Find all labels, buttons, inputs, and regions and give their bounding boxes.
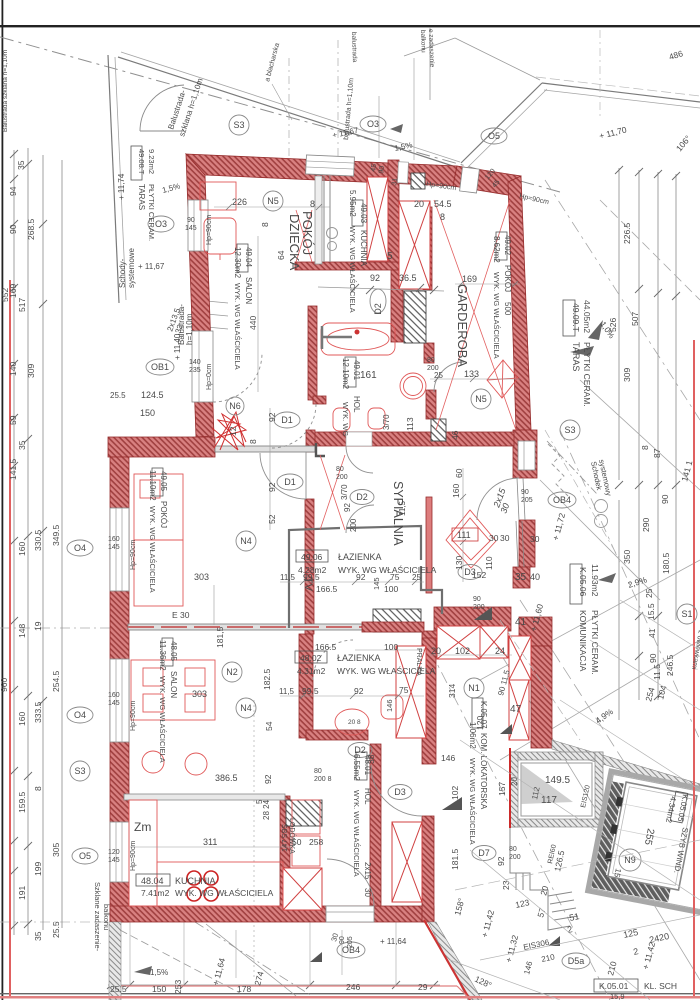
svg-text:balkonu: balkonu <box>419 30 427 53</box>
svg-text:8: 8 <box>310 199 315 209</box>
svg-text:200: 200 <box>473 604 485 611</box>
svg-text:41: 41 <box>515 617 527 628</box>
svg-text:POKÓJ: POKÓJ <box>159 501 168 528</box>
svg-text:92: 92 <box>354 686 364 696</box>
svg-text:92: 92 <box>343 503 352 512</box>
svg-text:7.41m2: 7.41m2 <box>141 888 170 898</box>
svg-text:99.5: 99.5 <box>302 686 319 696</box>
svg-text:8: 8 <box>260 222 270 227</box>
svg-text:386.5: 386.5 <box>215 773 238 783</box>
svg-text:WYK. WG WŁAŚCICIELA: WYK. WG WŁAŚCICIELA <box>348 226 357 313</box>
svg-text:K.05.07: K.05.07 <box>479 701 488 729</box>
svg-text:160: 160 <box>17 712 27 726</box>
svg-text:S3: S3 <box>74 766 85 776</box>
svg-text:226: 226 <box>232 197 247 207</box>
svg-text:152: 152 <box>472 570 486 580</box>
svg-text:309: 309 <box>26 364 36 378</box>
svg-text:WYK. WG WŁAŚCICIELA: WYK. WG WŁAŚCICIELA <box>175 887 274 898</box>
svg-text:181,5: 181,5 <box>215 626 225 648</box>
svg-text:3/70: 3/70 <box>382 414 391 430</box>
svg-text:49.02: 49.02 <box>503 235 512 256</box>
svg-text:O5: O5 <box>488 131 500 141</box>
svg-text:253: 253 <box>173 980 183 994</box>
svg-text:3/70: 3/70 <box>340 484 349 500</box>
svg-text:D7: D7 <box>478 848 490 858</box>
svg-text:POKÓJ: POKÓJ <box>503 265 512 292</box>
svg-text:Zm: Zm <box>134 820 151 834</box>
svg-text:29: 29 <box>418 982 428 992</box>
svg-text:WYK. WG WŁAŚCICIELA: WYK. WG WŁAŚCICIELA <box>148 506 157 593</box>
svg-text:133: 133 <box>464 369 479 379</box>
svg-text:D3: D3 <box>394 787 406 797</box>
svg-text:WYK. WG WŁAŚCICIELA: WYK. WG WŁAŚCICIELA <box>352 790 361 877</box>
svg-text:TARAS: TARAS <box>137 184 146 210</box>
svg-text:48.02: 48.02 <box>300 653 322 663</box>
svg-text:140: 140 <box>189 359 201 366</box>
svg-text:15,9: 15,9 <box>610 992 625 1000</box>
svg-text:181.5: 181.5 <box>450 848 460 870</box>
svg-text:8: 8 <box>248 439 258 444</box>
svg-text:WYK. WG WŁAŚCICIELA: WYK. WG WŁAŚCICIELA <box>233 283 242 370</box>
svg-text:K.05.06: K.05.06 <box>578 567 588 597</box>
svg-text:ŁAZIENKA: ŁAZIENKA <box>338 552 382 562</box>
svg-text:36.5: 36.5 <box>399 273 417 283</box>
svg-text:HOL: HOL <box>363 788 372 805</box>
svg-text:balkonu: balkonu <box>102 904 111 930</box>
svg-text:h=1,10m: h=1,10m <box>185 313 194 345</box>
svg-text:HOL: HOL <box>352 396 361 413</box>
svg-text:200: 200 <box>349 518 358 532</box>
svg-text:148: 148 <box>17 624 27 638</box>
svg-text:Balustrada szklana h=1,10m: Balustrada szklana h=1,10m <box>2 50 9 132</box>
svg-text:49.08.T: 49.08.T <box>137 149 146 175</box>
svg-text:31: 31 <box>391 177 399 186</box>
svg-text:4.31m2: 4.31m2 <box>297 666 326 676</box>
svg-text:52: 52 <box>267 514 277 524</box>
svg-text:DZIECKA: DZIECKA <box>287 214 302 271</box>
svg-text:WYK. WG WŁAŚCICIELA: WYK. WG WŁAŚCICIELA <box>468 758 477 845</box>
svg-text:330.5: 330.5 <box>33 529 43 551</box>
svg-text:130: 130 <box>454 556 464 570</box>
svg-text:25: 25 <box>644 588 654 598</box>
svg-text:99.5: 99.5 <box>303 572 320 582</box>
svg-text:150: 150 <box>140 408 155 418</box>
svg-text:25: 25 <box>412 573 421 582</box>
svg-text:205: 205 <box>521 497 533 504</box>
svg-text:180.5: 180.5 <box>661 552 671 574</box>
svg-text:28 24: 28 24 <box>262 799 271 820</box>
svg-text:balustrada: balustrada <box>350 32 358 63</box>
svg-text:+ 11,67: + 11,67 <box>138 262 165 271</box>
svg-text:314: 314 <box>447 684 457 698</box>
svg-text:S3: S3 <box>233 120 244 130</box>
svg-text:48.01: 48.01 <box>363 755 372 776</box>
svg-text:12.10m2: 12.10m2 <box>341 358 350 390</box>
svg-text:110: 110 <box>484 556 494 570</box>
svg-text:O3: O3 <box>367 119 379 129</box>
svg-text:246: 246 <box>346 982 360 992</box>
svg-text:49.06: 49.06 <box>301 552 323 562</box>
svg-text:e zadaszenie: e zadaszenie <box>427 29 435 68</box>
svg-text:11,5: 11,5 <box>398 500 407 516</box>
svg-text:500: 500 <box>503 302 512 316</box>
svg-text:systemowe: systemowe <box>127 247 136 288</box>
svg-text:145: 145 <box>108 857 120 864</box>
svg-text:48.04: 48.04 <box>141 876 164 886</box>
svg-text:Hp=90cm: Hp=90cm <box>130 540 137 570</box>
svg-text:OB1: OB1 <box>151 362 169 372</box>
svg-text:ŁAZIENKA: ŁAZIENKA <box>337 653 381 663</box>
svg-text:N9: N9 <box>624 855 636 865</box>
svg-text:80: 80 <box>314 768 322 775</box>
svg-text:145: 145 <box>108 700 120 707</box>
svg-text:120: 120 <box>108 849 120 856</box>
svg-text:145: 145 <box>372 577 381 590</box>
svg-text:12.30m2: 12.30m2 <box>233 247 242 279</box>
svg-text:140: 140 <box>8 362 18 376</box>
svg-text:50: 50 <box>292 837 302 847</box>
svg-text:25: 25 <box>434 371 443 380</box>
svg-text:24: 24 <box>495 646 505 656</box>
svg-text:Hp=0cm: Hp=0cm <box>206 364 213 390</box>
svg-text:S1: S1 <box>681 609 692 619</box>
svg-text:960: 960 <box>0 678 9 692</box>
svg-text:311: 311 <box>203 837 217 847</box>
svg-text:145: 145 <box>185 225 197 232</box>
svg-text:WYK. WG WŁAŚCICIELA: WYK. WG WŁAŚCICIELA <box>338 564 437 575</box>
svg-text:N6: N6 <box>229 401 241 411</box>
svg-text:333.5: 333.5 <box>33 701 43 723</box>
svg-text:92: 92 <box>267 412 277 422</box>
svg-text:20 8: 20 8 <box>348 719 361 726</box>
svg-text:48.05: 48.05 <box>169 641 178 662</box>
svg-text:191: 191 <box>17 886 27 900</box>
svg-text:92: 92 <box>263 774 273 784</box>
svg-text:8: 8 <box>440 212 445 222</box>
svg-text:124.5: 124.5 <box>141 390 164 400</box>
svg-text:64: 64 <box>276 250 286 260</box>
svg-text:166.5: 166.5 <box>316 584 338 594</box>
svg-text:35: 35 <box>16 160 26 170</box>
svg-text:N4: N4 <box>240 536 252 546</box>
svg-text:49.04: 49.04 <box>244 247 253 268</box>
svg-text:23: 23 <box>501 880 511 890</box>
svg-text:75: 75 <box>390 572 400 582</box>
svg-text:O4: O4 <box>74 710 86 720</box>
svg-text:SBS: SBS <box>280 824 287 838</box>
svg-text:PŁYTKI CERAM.: PŁYTKI CERAM. <box>590 610 600 675</box>
svg-text:440: 440 <box>248 316 258 330</box>
svg-text:6.55m2: 6.55m2 <box>352 754 361 781</box>
svg-text:Schody-: Schody- <box>118 258 127 288</box>
svg-text:11,5: 11,5 <box>280 573 296 582</box>
svg-text:Szklane zadaszenie-: Szklane zadaszenie- <box>93 882 102 952</box>
svg-text:D1: D1 <box>281 415 293 425</box>
svg-text:1,5%: 1,5% <box>150 968 168 977</box>
svg-text:WYK. WG WŁAŚCICIELA: WYK. WG WŁAŚCICIELA <box>492 272 501 359</box>
svg-text:30: 30 <box>500 533 510 543</box>
svg-text:S3: S3 <box>564 425 575 435</box>
svg-text:169: 169 <box>462 274 477 284</box>
svg-text:200: 200 <box>336 474 348 481</box>
svg-text:102: 102 <box>455 646 470 656</box>
svg-text:205: 205 <box>347 936 354 948</box>
svg-text:54: 54 <box>264 721 274 731</box>
svg-text:O5: O5 <box>79 851 91 861</box>
svg-text:2x15: 2x15 <box>363 862 372 880</box>
svg-text:90: 90 <box>521 489 529 496</box>
svg-text:54.5: 54.5 <box>434 199 452 209</box>
svg-text:226.5: 226.5 <box>622 222 632 244</box>
svg-text:N2: N2 <box>226 667 238 677</box>
svg-text:25.5: 25.5 <box>110 391 126 400</box>
svg-text:KUCHNIA: KUCHNIA <box>175 876 216 886</box>
svg-text:N1: N1 <box>468 683 480 693</box>
svg-text:111: 111 <box>457 530 471 540</box>
svg-text:102: 102 <box>450 786 460 800</box>
svg-text:11,5: 11,5 <box>279 687 295 696</box>
svg-text:161: 161 <box>360 370 377 381</box>
svg-text:90: 90 <box>339 936 346 944</box>
svg-text:47: 47 <box>510 704 522 715</box>
svg-text:N5: N5 <box>475 394 487 404</box>
svg-text:N4: N4 <box>240 703 252 713</box>
svg-text:100: 100 <box>384 584 398 594</box>
svg-text:100: 100 <box>384 642 398 652</box>
svg-text:146: 146 <box>441 753 455 763</box>
svg-text:305: 305 <box>51 843 61 857</box>
svg-text:N5: N5 <box>267 196 279 206</box>
svg-text:149.5: 149.5 <box>545 775 570 786</box>
svg-text:235: 235 <box>189 367 201 374</box>
svg-text:PŁYTKI CERAM.: PŁYTKI CERAM. <box>582 342 592 407</box>
svg-text:K.05.01: K.05.01 <box>599 981 629 991</box>
svg-text:20: 20 <box>510 777 519 786</box>
svg-text:49.03: 49.03 <box>359 203 368 224</box>
svg-text:92: 92 <box>496 856 506 866</box>
svg-text:8: 8 <box>640 445 650 450</box>
svg-text:KL. SCH: KL. SCH <box>644 981 677 991</box>
svg-text:5: 5 <box>387 251 393 262</box>
svg-text:268.5: 268.5 <box>26 218 36 240</box>
svg-text:309: 309 <box>622 368 632 382</box>
svg-text:178: 178 <box>237 984 251 994</box>
svg-text:D2: D2 <box>373 303 383 315</box>
svg-text:Hp=90cm: Hp=90cm <box>206 215 213 245</box>
svg-text:35: 35 <box>17 440 27 450</box>
svg-text:517: 517 <box>17 298 27 312</box>
svg-text:35: 35 <box>33 931 43 941</box>
svg-text:D1: D1 <box>284 477 296 487</box>
svg-text:O4: O4 <box>74 543 86 553</box>
svg-text:D2: D2 <box>356 492 368 502</box>
svg-text:35: 35 <box>515 572 527 583</box>
svg-text:200: 200 <box>509 854 521 861</box>
svg-text:90: 90 <box>187 217 195 224</box>
svg-text:1.06m2: 1.06m2 <box>468 722 477 749</box>
svg-text:WYK. WG WŁAŚCICIELA: WYK. WG WŁAŚCICIELA <box>337 665 436 676</box>
svg-text:90: 90 <box>648 653 658 663</box>
svg-text:41: 41 <box>647 628 657 638</box>
svg-text:KOMUNIKACJA: KOMUNIKACJA <box>578 610 588 672</box>
svg-text:30: 30 <box>530 534 540 544</box>
svg-text:SALON: SALON <box>244 277 253 304</box>
svg-text:25.5: 25.5 <box>51 921 61 938</box>
svg-text:200 8: 200 8 <box>314 776 332 783</box>
svg-text:8.62m2: 8.62m2 <box>492 236 501 263</box>
svg-text:11.5: 11.5 <box>652 664 662 680</box>
svg-text:40: 40 <box>530 572 540 582</box>
svg-text:WYK. WG WŁAŚCICIELA: WYK. WG WŁAŚCICIELA <box>158 676 167 763</box>
svg-text:80: 80 <box>509 846 517 853</box>
svg-text:30: 30 <box>363 888 372 897</box>
svg-text:160: 160 <box>451 484 461 498</box>
svg-text:TARAS: TARAS <box>571 342 581 371</box>
svg-text:11.36m2: 11.36m2 <box>158 640 167 671</box>
svg-text:150: 150 <box>152 984 166 994</box>
svg-text:290: 290 <box>641 518 651 532</box>
svg-text:303: 303 <box>192 689 207 699</box>
svg-text:SALON: SALON <box>169 671 178 698</box>
svg-text:51: 51 <box>568 911 580 923</box>
svg-text:45: 45 <box>370 163 378 172</box>
svg-text:11.10m2: 11.10m2 <box>148 470 157 501</box>
svg-text:147: 147 <box>280 839 289 852</box>
svg-text:5.95m2: 5.95m2 <box>348 190 357 217</box>
svg-text:87: 87 <box>652 448 662 458</box>
svg-text:90: 90 <box>378 165 386 174</box>
svg-text:9.23m2: 9.23m2 <box>147 149 156 174</box>
svg-text:166.5: 166.5 <box>315 642 337 652</box>
svg-text:PŁYTKI CERAM.: PŁYTKI CERAM. <box>147 184 156 241</box>
svg-text:350: 350 <box>622 550 632 564</box>
svg-text:20: 20 <box>414 199 424 209</box>
svg-text:90: 90 <box>660 494 670 504</box>
svg-text:44.05m2: 44.05m2 <box>582 300 592 333</box>
svg-text:GARDEROBA: GARDEROBA <box>455 284 470 367</box>
svg-text:8: 8 <box>33 786 43 791</box>
svg-text:117: 117 <box>541 795 557 806</box>
svg-text:303: 303 <box>194 572 209 582</box>
svg-text:19: 19 <box>33 621 43 631</box>
svg-text:157: 157 <box>497 782 507 796</box>
svg-text:KUCHNIA: KUCHNIA <box>359 230 368 267</box>
svg-text:+ 11,74: + 11,74 <box>117 173 126 200</box>
svg-text:254.5: 254.5 <box>51 670 61 692</box>
svg-text:92: 92 <box>370 273 380 283</box>
svg-text:Hp=90cm: Hp=90cm <box>130 701 137 731</box>
svg-text:160: 160 <box>108 692 120 699</box>
svg-text:552: 552 <box>0 288 10 302</box>
svg-text:160: 160 <box>17 542 27 556</box>
svg-text:146: 146 <box>385 699 394 712</box>
svg-text:80: 80 <box>336 466 344 473</box>
svg-text:145: 145 <box>108 544 120 551</box>
svg-text:+ 11,64: + 11,64 <box>380 937 407 946</box>
svg-text:OB4: OB4 <box>553 495 571 505</box>
svg-text:258: 258 <box>309 837 323 847</box>
svg-text:199: 199 <box>33 862 43 876</box>
svg-text:E 30: E 30 <box>172 610 190 620</box>
svg-text:D5a: D5a <box>568 956 585 966</box>
svg-text:141.5: 141.5 <box>8 458 18 480</box>
svg-text:49.09.T: 49.09.T <box>571 303 581 332</box>
svg-text:75: 75 <box>399 685 409 695</box>
svg-text:160: 160 <box>108 536 120 543</box>
svg-text:30: 30 <box>489 533 499 543</box>
svg-text:KOM. LOKATORSKA: KOM. LOKATORSKA <box>479 733 488 810</box>
svg-text:92: 92 <box>356 572 366 582</box>
svg-text:WYK. WG: WYK. WG <box>341 402 350 436</box>
svg-text:507: 507 <box>630 312 640 326</box>
svg-text:11.93m2: 11.93m2 <box>590 564 600 597</box>
svg-text:159.5: 159.5 <box>17 791 27 813</box>
svg-text:49.05: 49.05 <box>159 471 168 492</box>
svg-text:Hp=90cm: Hp=90cm <box>130 841 137 871</box>
svg-text:12: 12 <box>228 426 238 436</box>
svg-text:92: 92 <box>267 482 277 492</box>
svg-text:80: 80 <box>427 357 435 364</box>
svg-text:60: 60 <box>454 468 464 478</box>
svg-text:90: 90 <box>8 224 18 234</box>
svg-text:349.5: 349.5 <box>51 524 61 546</box>
svg-text:182.5: 182.5 <box>262 668 272 690</box>
svg-text:90: 90 <box>473 596 481 603</box>
svg-text:46: 46 <box>450 430 460 440</box>
svg-text:25.5: 25.5 <box>110 984 127 994</box>
svg-text:246.5: 246.5 <box>665 654 675 676</box>
svg-text:94: 94 <box>8 186 18 196</box>
svg-text:200: 200 <box>427 365 439 372</box>
svg-text:59: 59 <box>8 415 18 425</box>
svg-text:20: 20 <box>431 646 441 656</box>
svg-text:113: 113 <box>405 417 415 431</box>
